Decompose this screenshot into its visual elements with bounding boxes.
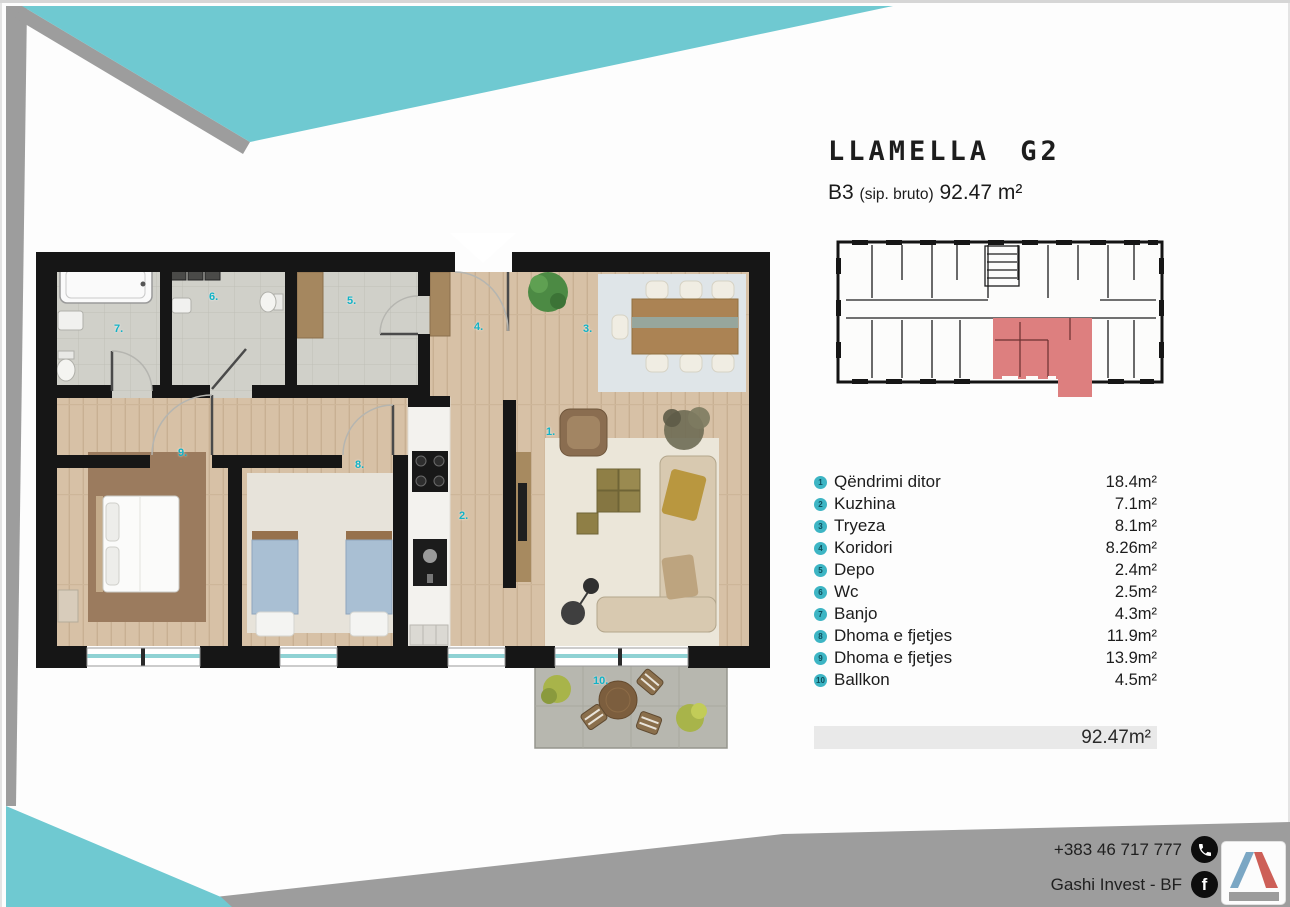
room-area: 2.5m²	[1115, 583, 1157, 602]
room-number-badge: 5	[814, 564, 827, 577]
plan-room-number: 9.	[178, 447, 187, 459]
unit-subtitle: B3 (sip. bruto) 92.47 m²	[828, 181, 1061, 205]
room-list-item: 8Dhoma e fjetjes11.9m²	[814, 625, 1157, 647]
logo-mark	[1222, 842, 1285, 904]
room-area: 2.4m²	[1115, 561, 1157, 580]
plan-room-number: 10.	[593, 675, 608, 687]
kitchen-counter	[408, 398, 450, 646]
total-area-value: 92.47m²	[1081, 727, 1151, 749]
room-list-item: 9Dhoma e fjetjes13.9m²	[814, 647, 1157, 669]
page-graphics	[0, 0, 1290, 907]
room-list-item: 4Koridori8.26m²	[814, 537, 1157, 559]
room-name: Dhoma e fjetjes	[834, 626, 1107, 646]
entrance-marker	[450, 233, 516, 263]
unit-code: B3	[828, 181, 854, 204]
plan-room-number: 3.	[583, 323, 592, 335]
plan-room-number: 5.	[347, 295, 356, 307]
room-number-badge: 10	[814, 674, 827, 687]
plan-room-number: 8.	[355, 459, 364, 471]
bottom-teal-band	[6, 806, 232, 907]
living-rug	[545, 438, 719, 646]
room-name: Banjo	[834, 604, 1115, 624]
page-title: LLAMELLA G2	[828, 136, 1061, 167]
stone-floor	[57, 272, 430, 398]
page-decorations	[6, 6, 1290, 907]
room-number-badge: 8	[814, 630, 827, 643]
room-area: 11.9m²	[1107, 627, 1157, 646]
top-gray-band	[15, 6, 250, 154]
room-number-badge: 2	[814, 498, 827, 511]
key-plan-walls	[846, 245, 1156, 378]
room-name: Tryeza	[834, 516, 1115, 536]
company-logo	[1222, 842, 1285, 904]
plan-room-number: 4.	[474, 321, 483, 333]
room-list-item: 5Depo2.4m²	[814, 559, 1157, 581]
room-area: 4.5m²	[1115, 671, 1157, 690]
room-list-item: 3Tryeza8.1m²	[814, 515, 1157, 537]
phone-icon	[1191, 836, 1218, 863]
plan-room-number: 1.	[546, 426, 555, 438]
plan-room-number: 7.	[114, 323, 123, 335]
contact-phone-row: +383 46 717 777	[1054, 836, 1218, 863]
doors	[112, 272, 508, 455]
room-list-item: 1Qëndrimi ditor18.4m²	[814, 471, 1157, 493]
balcony-furniture	[541, 668, 707, 735]
room-name: Wc	[834, 582, 1115, 602]
room-list-item: 7Banjo4.3m²	[814, 603, 1157, 625]
room-area: 8.26m²	[1106, 539, 1157, 558]
wood-floor	[57, 272, 749, 646]
room-name: Koridori	[834, 538, 1106, 558]
bathroom-fixtures	[57, 265, 152, 381]
unit-area: 92.47 m²	[939, 181, 1022, 204]
entry-wardrobe	[430, 272, 450, 336]
room-name: Ballkon	[834, 670, 1115, 690]
logo-caption-strip	[1229, 892, 1279, 901]
room-number-badge: 7	[814, 608, 827, 621]
dining-rug	[598, 274, 746, 392]
contact-phone: +383 46 717 777	[1054, 840, 1182, 860]
room-name: Depo	[834, 560, 1115, 580]
bedroom8-carpet	[247, 473, 393, 633]
bedroom9-furniture	[58, 496, 179, 622]
wc-fixtures	[171, 267, 283, 313]
room-number-badge: 9	[814, 652, 827, 665]
unit-note: (sip. bruto)	[860, 186, 934, 203]
facebook-glyph: f	[1202, 875, 1208, 895]
bedroom8-furniture	[252, 531, 392, 636]
room-name: Dhoma e fjetjes	[834, 648, 1106, 668]
room-list-item: 2Kuzhina7.1m²	[814, 493, 1157, 515]
living-furniture	[516, 407, 716, 632]
room-area: 4.3m²	[1115, 605, 1157, 624]
room-name: Qëndrimi ditor	[834, 472, 1106, 492]
windows	[87, 648, 688, 666]
contact-company: Gashi Invest - BF	[1051, 875, 1182, 895]
unit-highlight	[993, 318, 1092, 397]
room-area: 8.1m²	[1115, 517, 1157, 536]
depo-wardrobe	[297, 272, 323, 338]
brochure-page: LLAMELLA G2 B3 (sip. bruto) 92.47 m² 1Që…	[0, 0, 1290, 907]
room-area: 13.9m²	[1106, 649, 1157, 668]
floor-plan	[36, 233, 770, 748]
room-list-item: 6Wc2.5m²	[814, 581, 1157, 603]
walls	[36, 252, 770, 668]
plan-room-number: 6.	[209, 291, 218, 303]
bedroom9-rug	[88, 452, 206, 622]
facebook-icon: f	[1191, 871, 1218, 898]
room-number-badge: 1	[814, 476, 827, 489]
balcony	[535, 664, 727, 748]
corridor-plant	[528, 272, 568, 312]
key-plan-window-ticks	[836, 240, 1164, 384]
room-number-badge: 6	[814, 586, 827, 599]
room-number-badge: 3	[814, 520, 827, 533]
kitchen-appliances	[410, 451, 448, 645]
room-name: Kuzhina	[834, 494, 1115, 514]
room-number-badge: 4	[814, 542, 827, 555]
room-area: 7.1m²	[1115, 495, 1157, 514]
room-list-item: 10Ballkon4.5m²	[814, 669, 1157, 691]
key-plan	[836, 240, 1164, 397]
room-area: 18.4m²	[1106, 473, 1157, 492]
dining-set	[612, 281, 738, 372]
contact-company-row: Gashi Invest - BF f	[1051, 871, 1218, 898]
room-list: 1Qëndrimi ditor18.4m²2Kuzhina7.1m²3Tryez…	[814, 471, 1157, 691]
plan-room-number: 2.	[459, 510, 468, 522]
total-area-bar: 92.47m²	[814, 726, 1157, 749]
left-gray-strip	[6, 6, 27, 806]
title-block: LLAMELLA G2 B3 (sip. bruto) 92.47 m²	[828, 136, 1061, 205]
top-teal-band	[22, 6, 893, 142]
